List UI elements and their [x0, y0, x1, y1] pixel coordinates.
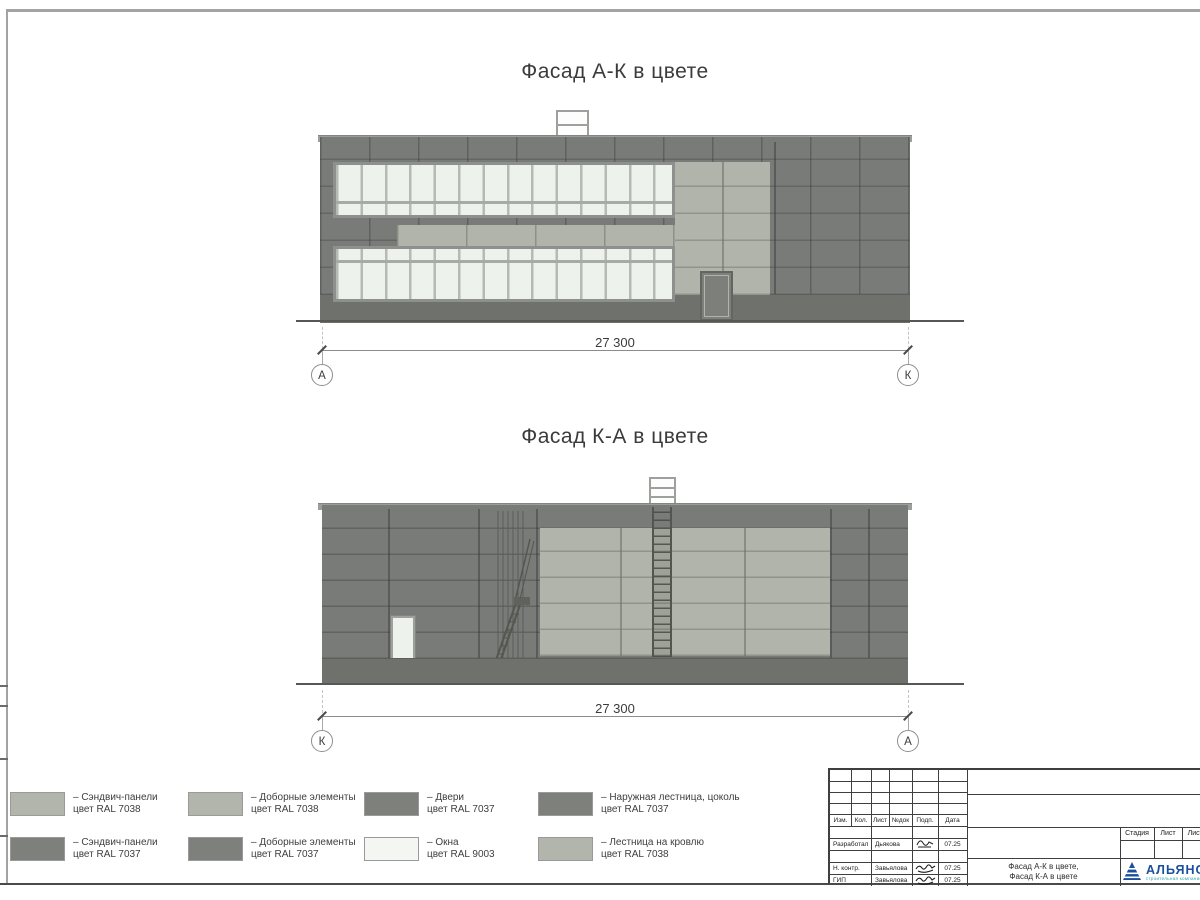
tb-stage-header: Стадия: [1120, 827, 1154, 840]
axis-marker-k: К: [311, 730, 333, 752]
tb-date: 07.25: [938, 862, 967, 874]
legend-item: – Сэндвич-панелицвет RAL 7037: [10, 837, 158, 861]
drawing-sheet: Фасад А-К в цвете 27 300 А К Фасад К-А в…: [0, 0, 1200, 900]
facade2-ground-line: [296, 683, 964, 685]
tb-name: Завьялова: [873, 862, 914, 874]
legend-swatch: [10, 837, 65, 861]
axis-marker-a: А: [897, 730, 919, 752]
roof-access-ladder: [652, 507, 672, 657]
legend-item: – Окнацвет RAL 9003: [364, 837, 495, 861]
panel-joint: [744, 528, 746, 656]
frame-top-line: [6, 9, 1200, 12]
tb-col-kol: Кол.: [851, 814, 871, 826]
tb-sheets-header: Листов: [1182, 827, 1200, 840]
axis-stub: [322, 717, 323, 730]
tb-date: 07.25: [938, 838, 967, 850]
dimension-line: [322, 350, 908, 351]
legend-swatch: [538, 792, 593, 816]
axis-marker-k: К: [897, 364, 919, 386]
tb-name: Завьялова: [873, 874, 914, 886]
legend-item: – Лестница на кровлюцвет RAL 7038: [538, 837, 704, 861]
side-window: [391, 616, 415, 663]
axis-stub: [908, 717, 909, 730]
company-logo-cell: АЛЬЯНС строительная компания: [1120, 858, 1200, 886]
legend-item: – Доборные элементыцвет RAL 7037: [188, 837, 356, 861]
facade1-title: Фасад А-К в цвете: [320, 60, 910, 84]
company-name: АЛЬЯНС: [1146, 864, 1200, 876]
tb-date: 07.25: [938, 874, 967, 886]
panel-joint: [774, 142, 776, 294]
tb-sheet-header: Лист: [1154, 827, 1182, 840]
facade2-light-panels: [540, 528, 830, 656]
legend-swatch: [188, 792, 243, 816]
tb-col-podp: Подп.: [912, 814, 938, 826]
facade1-dimension-label: 27 300: [515, 335, 715, 350]
legend-swatch: [364, 792, 419, 816]
tb-name: Дьякова: [873, 838, 914, 850]
tb-col-data: Дата: [938, 814, 967, 826]
tb-doc-title: Фасад А-К в цвете, Фасад К-А в цвете: [967, 858, 1120, 886]
entrance-door: [700, 271, 733, 321]
legend-swatch: [364, 837, 419, 861]
margin-tick: [0, 685, 8, 687]
signature: [914, 873, 936, 886]
legend-swatch: [538, 837, 593, 861]
facade1-upper-window-band: [333, 162, 675, 218]
tb-role: Разработал: [831, 838, 873, 850]
panel-joint: [620, 528, 622, 656]
company-subtitle: строительная компания: [1146, 876, 1200, 881]
signature: [914, 836, 936, 850]
axis-stub: [322, 351, 323, 364]
frame-left-line: [6, 9, 8, 884]
facade2-dimension-label: 27 300: [515, 701, 715, 716]
facade1-spandrel: [397, 225, 675, 246]
margin-tick: [0, 705, 8, 707]
facade1-lower-window-band: [333, 246, 675, 302]
dimension-line: [322, 716, 908, 717]
tb-col-ndok: №док: [889, 814, 912, 826]
tb-col-izm: Изм.: [830, 814, 851, 826]
legend-item: – Наружная лестница, цокольцвет RAL 7037: [538, 792, 740, 816]
legend-swatch: [10, 792, 65, 816]
tb-role: ГИП: [831, 874, 873, 886]
facade2-title: Фасад К-А в цвете: [320, 425, 910, 449]
tb-col-list: Лист: [871, 814, 889, 826]
company-logo-icon: [1122, 861, 1142, 883]
tb-role: Н. контр.: [831, 862, 873, 874]
legend-item: – Дверицвет RAL 7037: [364, 792, 495, 816]
facade2-plinth: [322, 658, 908, 684]
title-block: Изм. Кол. Лист №док Подп. Дата Разработа…: [828, 768, 1200, 884]
facade1-ground-line: [296, 320, 964, 322]
margin-tick: [0, 758, 8, 760]
axis-marker-a: А: [311, 364, 333, 386]
legend-item: – Доборные элементыцвет RAL 7038: [188, 792, 356, 816]
margin-tick: [0, 835, 8, 837]
legend-swatch: [188, 837, 243, 861]
legend-item: – Сэндвич-панелицвет RAL 7038: [10, 792, 158, 816]
axis-stub: [908, 351, 909, 364]
